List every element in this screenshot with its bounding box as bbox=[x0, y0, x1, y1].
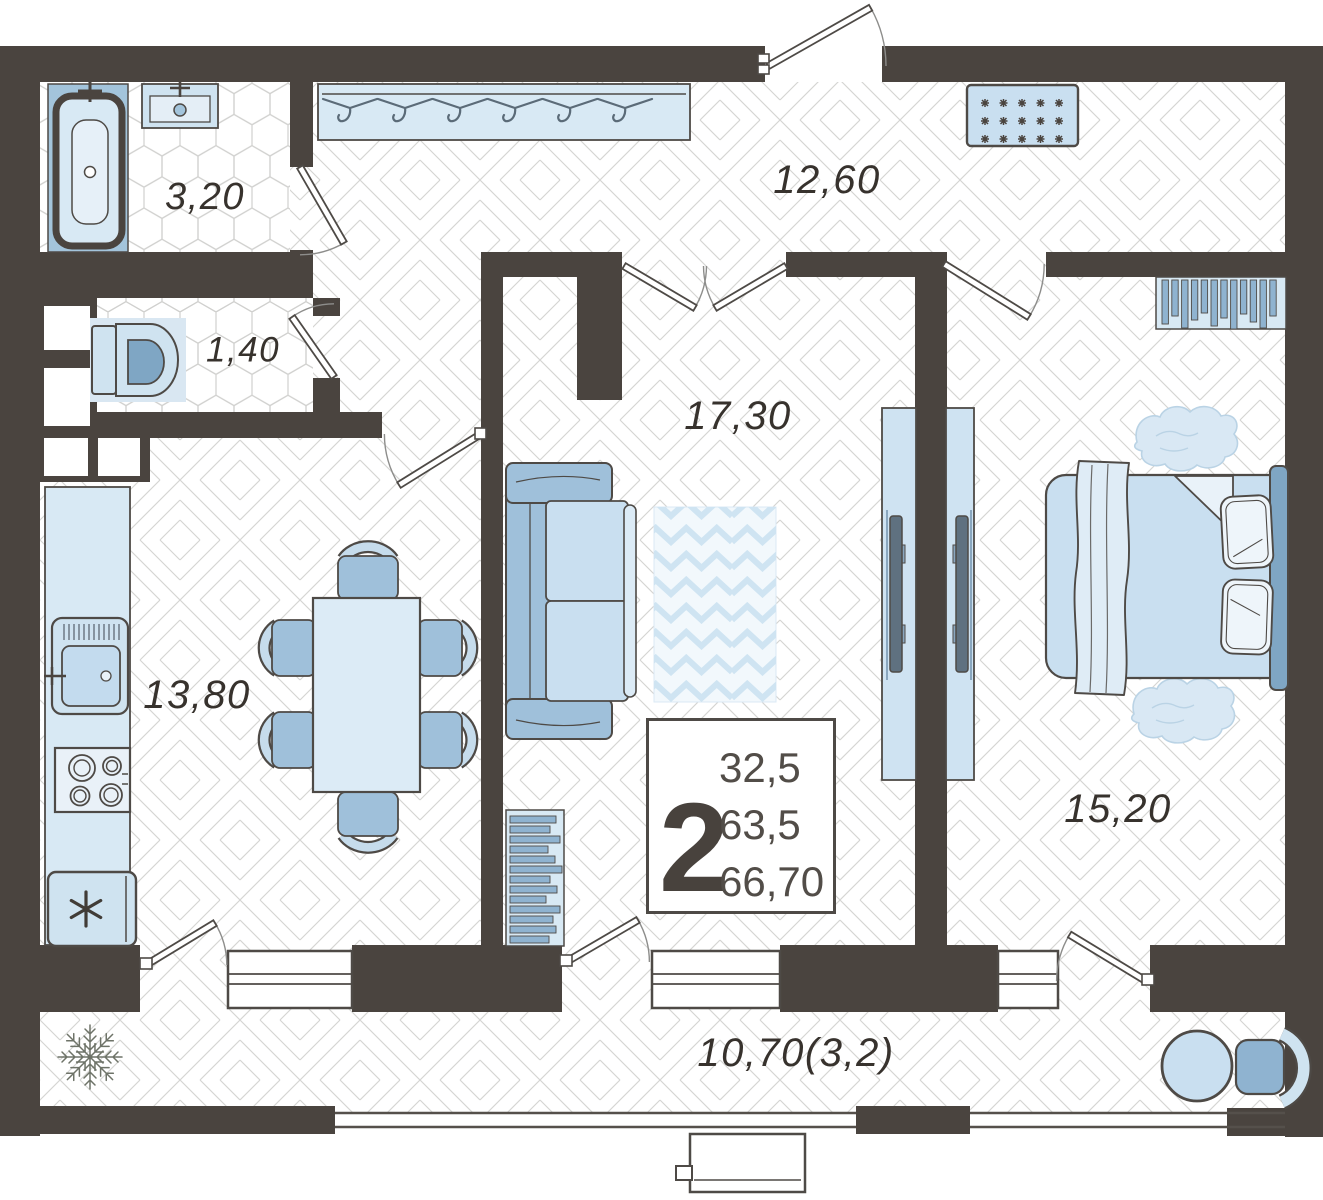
room-label-balcony: 10,70(3,2) bbox=[697, 1033, 894, 1073]
headboard bbox=[1270, 466, 1288, 690]
room-label-hallway: 12,60 bbox=[773, 160, 881, 200]
room-label-wc: 1,40 bbox=[206, 333, 280, 368]
entry-door-leaf bbox=[766, 5, 872, 69]
window-kitchen bbox=[228, 951, 352, 1008]
area-apartment-value: 63,5 bbox=[719, 796, 824, 853]
room-label-bathroom: 3,20 bbox=[165, 178, 245, 216]
shoe-cabinet bbox=[967, 85, 1078, 146]
pillow bbox=[1221, 579, 1274, 655]
toilet bbox=[90, 318, 186, 402]
rug-living bbox=[654, 507, 776, 702]
bathroom-sink bbox=[142, 79, 218, 128]
bed bbox=[1046, 461, 1288, 695]
window-bedroom bbox=[998, 951, 1058, 1008]
chair bbox=[272, 620, 316, 676]
chair bbox=[272, 712, 316, 768]
plant bbox=[58, 1025, 122, 1089]
fridge bbox=[48, 872, 136, 946]
window-living bbox=[652, 951, 780, 1008]
tv-partition-wall bbox=[915, 252, 947, 945]
chair bbox=[418, 712, 462, 768]
dining-table bbox=[313, 598, 420, 792]
pillow bbox=[1220, 495, 1274, 570]
stove bbox=[55, 748, 130, 812]
area-total-value: 66,70 bbox=[719, 853, 824, 910]
fluffy-rug bbox=[1135, 407, 1238, 471]
apartment-info-box: 2 32,5 63,5 66,70 bbox=[646, 718, 836, 914]
room-label-bedroom: 15,20 bbox=[1064, 789, 1172, 829]
kitchen-sink bbox=[44, 618, 128, 714]
exterior-unit bbox=[690, 1134, 805, 1192]
column bbox=[577, 277, 622, 400]
fluffy-rug bbox=[1132, 679, 1235, 743]
balcony-glazing bbox=[335, 1106, 1285, 1192]
wardrobe-shelf bbox=[1156, 277, 1286, 329]
bookshelf bbox=[506, 810, 564, 946]
tv-icon bbox=[890, 516, 902, 672]
bed-runner bbox=[1075, 461, 1129, 695]
chair bbox=[338, 792, 398, 836]
sofa bbox=[506, 463, 636, 739]
chair bbox=[338, 556, 398, 600]
room-label-kitchen: 13,80 bbox=[143, 675, 251, 715]
area-living-value: 32,5 bbox=[719, 739, 824, 796]
floor-plan: 3,20 1,40 12,60 17,30 13,80 15,20 10,70(… bbox=[0, 0, 1323, 1200]
tv-icon bbox=[956, 516, 968, 672]
coat-rack bbox=[318, 84, 690, 140]
room-label-living-room: 17,30 bbox=[684, 396, 792, 436]
chair bbox=[418, 620, 462, 676]
balcony-table bbox=[1162, 1031, 1232, 1101]
bathtub bbox=[48, 80, 128, 252]
